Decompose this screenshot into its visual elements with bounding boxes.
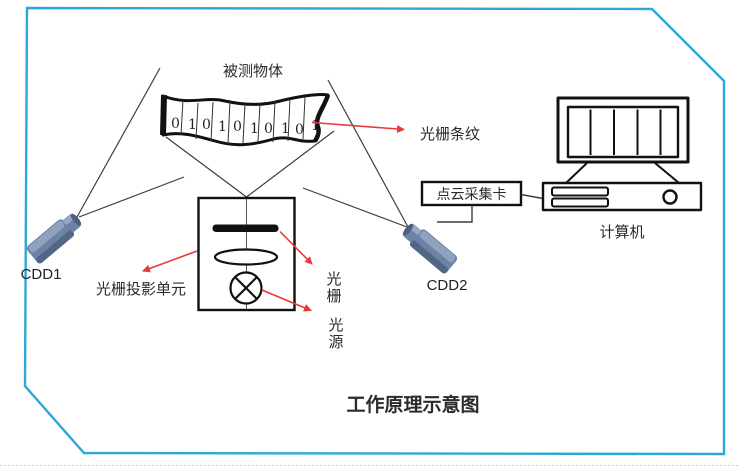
flag-left-pole xyxy=(163,95,164,135)
diagram-canvas: 0 1 0 1 0 1 0 1 0 1 被测物体 光栅条纹 光栅投影单元 xyxy=(0,0,738,467)
projector-box xyxy=(199,198,295,310)
grating-label-char2: 栅 xyxy=(326,287,341,305)
source-label-char1: 光 xyxy=(328,316,343,334)
measured-object-flag: 0 1 0 1 0 1 0 1 0 1 被测物体 xyxy=(163,62,328,145)
arrow-to-fringe-label xyxy=(312,123,404,130)
capture-card-label: 点云采集卡 xyxy=(437,186,507,203)
fringe-digit: 0 xyxy=(264,121,273,137)
sight-line-cdd1-upper xyxy=(77,68,160,217)
projection-ray-left xyxy=(166,137,247,197)
sight-line-cdd2-upper xyxy=(328,80,408,227)
fringe-digit: 1 xyxy=(188,117,197,133)
diagram-title: 工作原理示意图 xyxy=(346,393,479,416)
sight-line-cdd2-lower xyxy=(303,188,407,227)
fringe-digit: 0 xyxy=(202,117,211,133)
fringe-digit: 0 xyxy=(233,119,242,135)
fringe-digit: 1 xyxy=(281,121,290,137)
fringe-digit: 1 xyxy=(311,118,320,134)
monitor-stand xyxy=(566,163,679,183)
projector-label: 光栅投影单元 xyxy=(96,280,186,298)
arrow-to-projector-label xyxy=(143,251,197,271)
fringe-digit: 0 xyxy=(171,116,180,132)
lens-ellipse xyxy=(215,250,277,265)
sight-line-cdd1-lower xyxy=(79,177,184,217)
measured-object-label: 被测物体 xyxy=(223,62,283,80)
grating-label-char1: 光 xyxy=(326,270,341,288)
grating-bar xyxy=(213,225,279,233)
computer xyxy=(543,98,701,210)
source-label-char2: 源 xyxy=(328,333,343,351)
computer-label: 计算机 xyxy=(599,223,644,241)
camera-cdd2-label: CDD2 xyxy=(427,277,468,294)
fringe-label: 光栅条纹 xyxy=(420,125,480,143)
camera-cdd2 xyxy=(399,219,459,274)
camera-cdd1-label: CDD1 xyxy=(21,266,62,283)
camera-cdd1 xyxy=(25,209,85,264)
schematic-svg: 0 1 0 1 0 1 0 1 0 1 被测物体 光栅条纹 光栅投影单元 xyxy=(0,0,738,467)
fringe-digit: 1 xyxy=(250,121,259,137)
wire-card-to-computer xyxy=(521,195,543,199)
capture-card: 点云采集卡 xyxy=(422,182,543,222)
fringe-digit: 1 xyxy=(218,119,227,135)
fringe-digit: 0 xyxy=(295,122,304,138)
wire-card-to-cdd2 xyxy=(437,205,472,222)
light-source-symbol xyxy=(231,273,262,304)
